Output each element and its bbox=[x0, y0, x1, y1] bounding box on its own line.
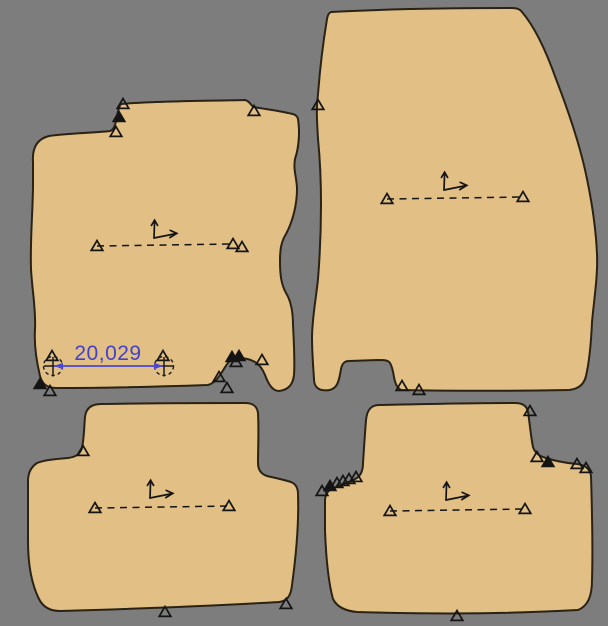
drawing-canvas[interactable]: 20,029 bbox=[0, 0, 608, 626]
axis-up-arrow bbox=[150, 481, 151, 499]
dimension-label: 20,029 bbox=[74, 342, 141, 365]
axis-up-arrow bbox=[444, 173, 445, 191]
axis-up-arrow bbox=[154, 221, 155, 239]
cad-viewport[interactable]: 20,029 bbox=[0, 0, 608, 626]
axis-up-arrow bbox=[446, 483, 447, 501]
